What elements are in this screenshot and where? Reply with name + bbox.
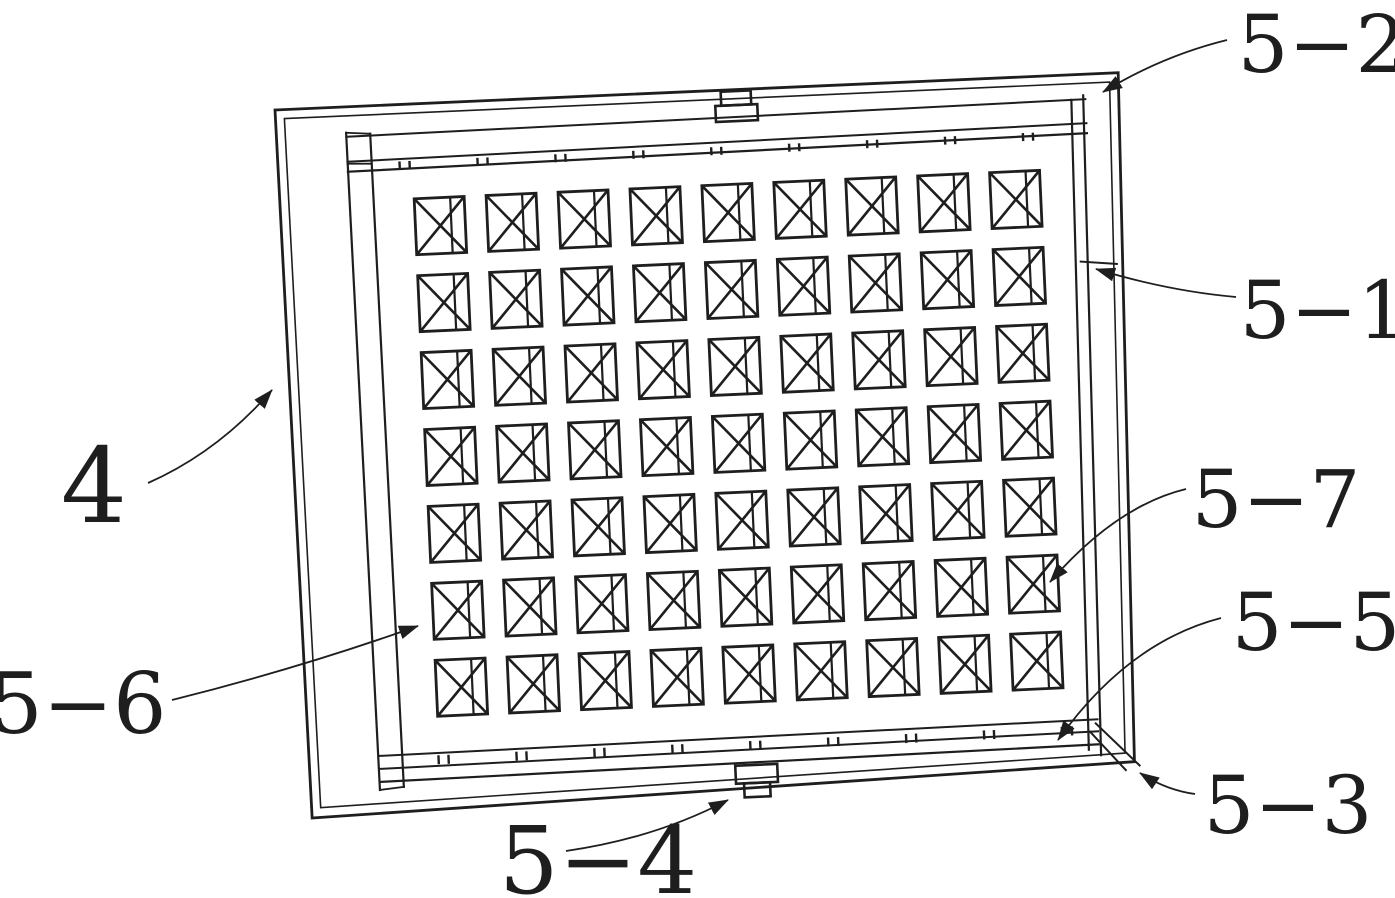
mesh-cell [853, 331, 905, 389]
cell-side-edge [471, 660, 473, 714]
mesh-cell [990, 170, 1042, 228]
mesh-cell [490, 270, 542, 328]
mesh-cell [723, 645, 775, 703]
cell-side-edge [1029, 249, 1031, 303]
mesh-cell [497, 424, 549, 482]
mesh-cell [507, 655, 559, 713]
cell-side-edge [748, 416, 750, 470]
mesh-cell [795, 642, 847, 700]
mesh-cell [867, 638, 919, 696]
figure-stage: 45−25−15−75−55−65−35−4 [0, 0, 1395, 898]
cell-side-edge [468, 583, 470, 637]
cell-side-edge [669, 265, 671, 319]
cell-side-edge [454, 275, 456, 329]
mesh-cell [575, 575, 627, 633]
mesh-cell [709, 337, 761, 395]
cell-side-edge [892, 409, 894, 463]
mesh-cell [921, 251, 973, 309]
cell-side-edge [971, 560, 973, 614]
mesh-cell [421, 350, 473, 408]
cell-side-edge [522, 195, 524, 249]
mesh-cell [774, 180, 826, 238]
mesh-cell [500, 501, 552, 559]
cell-side-edge [885, 255, 887, 309]
cell-side-edge [533, 426, 535, 480]
label-4: 4 [61, 425, 127, 547]
cell-side-edge [464, 506, 466, 560]
cell-side-edge [752, 493, 754, 547]
mesh-cell [925, 327, 977, 385]
inner-frame-left-edge [346, 132, 404, 791]
cell-side-edge [598, 269, 600, 323]
mesh-grid [414, 170, 1063, 716]
cell-side-edge [611, 576, 613, 630]
mesh-cell [637, 341, 689, 399]
cell-side-edge [824, 489, 826, 543]
cell-side-edge [457, 352, 459, 406]
label-5-5: 5−5 [1232, 576, 1395, 669]
cell-side-edge [817, 336, 819, 390]
mesh-cell [712, 414, 764, 472]
mesh-cell [1011, 632, 1063, 690]
callouts: 45−25−15−75−55−65−35−4 [0, 0, 1395, 898]
bottom-clip [735, 764, 778, 798]
patent-figure-canvas: 45−25−15−75−55−65−35−4 [0, 0, 1395, 898]
label-5-4: 5−4 [499, 807, 697, 898]
mesh-cell [486, 193, 538, 251]
label-5-7: 5−7 [1192, 453, 1361, 546]
cell-side-edge [899, 563, 901, 617]
cell-side-edge [605, 422, 607, 476]
cell-side-edge [975, 637, 977, 691]
leader-5-2 [1103, 40, 1227, 92]
cell-side-edge [954, 175, 956, 229]
cell-side-edge [461, 429, 463, 483]
cell-side-edge [964, 406, 966, 460]
cell-side-edge [666, 188, 668, 242]
leader-4 [148, 390, 272, 483]
mesh-cell [932, 481, 984, 539]
cell-side-edge [1043, 557, 1045, 611]
cell-side-edge [831, 643, 833, 697]
cell-side-edge [882, 179, 884, 233]
leader-5-7 [1050, 489, 1186, 582]
cell-side-edge [540, 579, 542, 633]
mesh-cell [640, 417, 692, 475]
panel-assembly [275, 72, 1150, 819]
mesh-cell [579, 652, 631, 710]
mesh-cell [651, 648, 703, 706]
cell-side-edge [1026, 172, 1028, 226]
cell-side-edge [755, 570, 757, 624]
mesh-cell [849, 254, 901, 312]
cell-side-edge [687, 650, 689, 704]
cell-side-edge [543, 656, 545, 710]
cell-side-edge [450, 198, 452, 252]
cell-side-edge [903, 640, 905, 694]
mesh-cell [863, 562, 915, 620]
mesh-cell [791, 565, 843, 623]
label-5-6: 5−6 [0, 655, 167, 753]
mesh-cell [569, 421, 621, 479]
mesh-cell [781, 334, 833, 392]
cell-side-edge [968, 483, 970, 537]
cell-side-edge [683, 573, 685, 627]
mesh-cell [939, 635, 991, 693]
mesh-cell [1000, 401, 1052, 459]
mesh-cell [846, 177, 898, 235]
mesh-cell [558, 190, 610, 248]
cell-side-edge [820, 413, 822, 467]
mesh-cell [788, 488, 840, 546]
leader-5-6 [172, 626, 418, 700]
mesh-cell [928, 404, 980, 462]
mesh-cell [647, 571, 699, 629]
cell-side-edge [529, 349, 531, 403]
cell-side-edge [961, 329, 963, 383]
mesh-cell [993, 247, 1045, 305]
cell-side-edge [601, 345, 603, 399]
cell-side-edge [1047, 634, 1049, 688]
cell-side-edge [957, 252, 959, 306]
cell-side-edge [594, 192, 596, 246]
mesh-cell [705, 260, 757, 318]
mesh-cell [414, 197, 466, 255]
mesh-cell [644, 494, 696, 552]
mesh-cell [856, 408, 908, 466]
cell-side-edge [608, 499, 610, 553]
cell-side-edge [738, 185, 740, 239]
mesh-cell [1004, 478, 1056, 536]
cell-side-edge [810, 182, 812, 236]
leader-5-3 [1140, 773, 1195, 794]
mesh-cell [777, 257, 829, 315]
cell-side-edge [1040, 480, 1042, 534]
mesh-cell [719, 568, 771, 626]
bottom-rail-ticks [438, 726, 1072, 764]
mesh-cell [1007, 555, 1059, 613]
cell-side-edge [1033, 326, 1035, 380]
cell-side-edge [1036, 403, 1038, 457]
cell-side-edge [680, 496, 682, 550]
label-5-2: 5−2 [1238, 0, 1395, 91]
cell-side-edge [526, 272, 528, 326]
mesh-cell [784, 411, 836, 469]
label-5-3: 5−3 [1204, 759, 1373, 852]
cell-side-edge [889, 332, 891, 386]
cell-side-edge [896, 486, 898, 540]
leader-5-5 [1058, 618, 1221, 740]
label-5-1: 5−1 [1240, 264, 1395, 357]
mesh-cell [425, 427, 477, 485]
mesh-cell [428, 504, 480, 562]
mesh-cell [633, 264, 685, 322]
mesh-cell [702, 183, 754, 241]
cell-side-edge [536, 503, 538, 557]
mesh-cell [716, 491, 768, 549]
cell-side-edge [741, 262, 743, 316]
mesh-cell [504, 578, 556, 636]
cell-side-edge [813, 259, 815, 313]
mesh-cell [493, 347, 545, 405]
mesh-cell [565, 344, 617, 402]
cell-side-edge [673, 342, 675, 396]
mesh-cell [435, 658, 487, 716]
mesh-cell [562, 267, 614, 325]
mesh-cell [918, 174, 970, 232]
leader-5-1 [1096, 269, 1236, 297]
cell-side-edge [676, 419, 678, 473]
mesh-cell [860, 485, 912, 543]
mesh-cell [630, 187, 682, 245]
mesh-cell [935, 558, 987, 616]
mesh-cell [432, 581, 484, 639]
cell-side-edge [827, 566, 829, 620]
cell-side-edge [745, 339, 747, 393]
mesh-cell [997, 324, 1049, 382]
mesh-cell [418, 273, 470, 331]
mesh-cell [572, 498, 624, 556]
cell-side-edge [759, 647, 761, 701]
cell-side-edge [615, 653, 617, 707]
